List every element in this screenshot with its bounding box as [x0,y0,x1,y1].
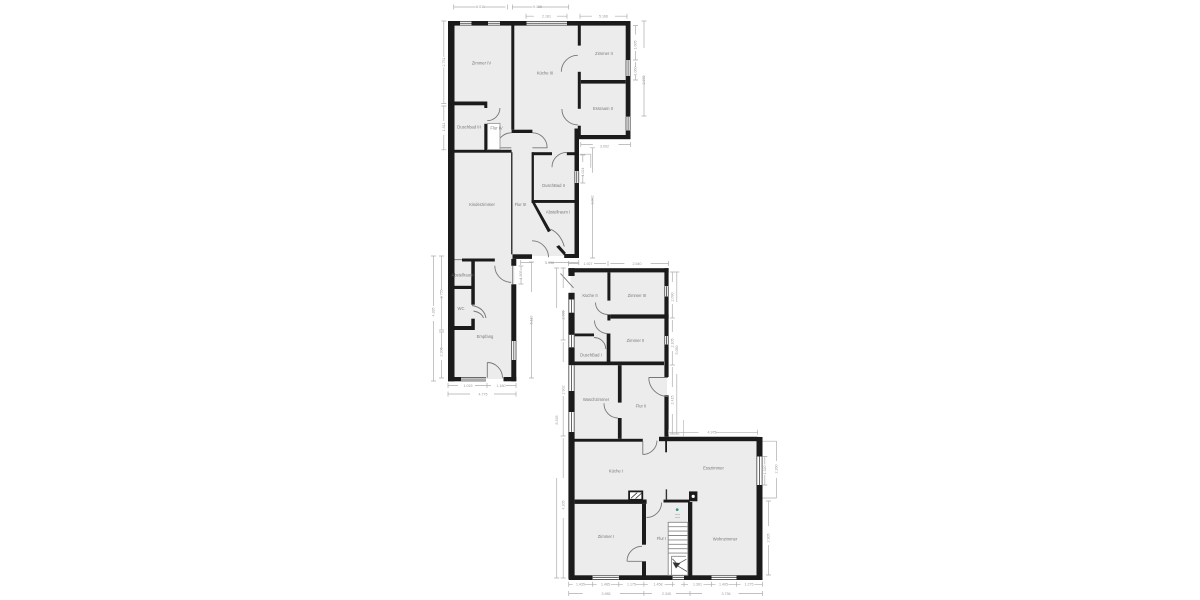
svg-text:1.485: 1.485 [601,583,610,587]
svg-text:Zimmer II: Zimmer II [595,51,613,56]
svg-text:1.175: 1.175 [627,583,636,587]
svg-text:Zimmer IV: Zimmer IV [472,61,492,66]
svg-text:1.320: 1.320 [763,466,767,475]
svg-text:5.050: 5.050 [675,346,679,355]
svg-text:Flur III: Flur III [515,202,527,207]
svg-text:2.415: 2.415 [671,396,675,405]
svg-text:9.166: 9.166 [533,5,542,9]
svg-text:2.305: 2.305 [440,348,444,357]
svg-text:4.285: 4.285 [432,308,436,317]
svg-text:2.970: 2.970 [642,76,646,85]
svg-text:Abstellraum: Abstellraum [451,273,474,278]
svg-text:1.160: 1.160 [497,384,506,388]
svg-text:2.905: 2.905 [767,534,771,543]
svg-text:Flur I: Flur I [657,536,667,541]
svg-text:8.335: 8.335 [555,416,559,425]
svg-text:Zimmer II: Zimmer II [627,338,645,343]
svg-text:Flur II: Flur II [636,404,647,409]
svg-text:5.936: 5.936 [545,261,554,265]
svg-text:2.181: 2.181 [542,14,551,18]
svg-text:2.105: 2.105 [671,339,675,348]
svg-text:1.275: 1.275 [745,583,754,587]
svg-text:1.060: 1.060 [634,67,638,76]
svg-text:Flur IV: Flur IV [490,126,503,131]
svg-text:6.011: 6.011 [476,5,485,9]
svg-text:Abstellraum I: Abstellraum I [546,210,570,215]
svg-text:Esszimmer: Esszimmer [703,466,724,471]
svg-text:3.985: 3.985 [602,592,611,596]
svg-text:DuschBad I: DuschBad I [580,353,602,358]
svg-text:2.755: 2.755 [440,290,444,299]
svg-text:Duschbad III: Duschbad III [457,125,481,130]
svg-text:2.751: 2.751 [442,58,446,67]
svg-text:2.905: 2.905 [561,311,565,320]
svg-text:Zimmer I: Zimmer I [598,534,615,539]
svg-text:2.902: 2.902 [561,386,565,395]
svg-text:1.458: 1.458 [654,583,663,587]
svg-text:4.205: 4.205 [561,501,565,510]
svg-text:1.005: 1.005 [634,41,638,50]
svg-text:DuschBad II: DuschBad II [542,183,565,188]
svg-text:1.811: 1.811 [442,123,446,132]
svg-text:2.345: 2.345 [662,592,671,596]
svg-text:1.021: 1.021 [581,168,585,177]
svg-text:1.405: 1.405 [719,583,728,587]
svg-text:Kinderzimmer: Kinderzimmer [469,202,495,207]
svg-text:6.110: 6.110 [530,316,534,325]
svg-text:Waschzimmer: Waschzimmer [583,397,610,402]
svg-text:Zimmer III: Zimmer III [628,293,647,298]
svg-text:1.361: 1.361 [693,583,702,587]
svg-text:2.260: 2.260 [775,465,779,474]
svg-text:Küche I: Küche I [609,468,623,473]
svg-text:Wohnzimmer: Wohnzimmer [713,536,738,541]
svg-text:1.435: 1.435 [576,583,585,587]
svg-text:2.090: 2.090 [671,293,675,302]
svg-text:Küche II: Küche II [582,293,597,298]
svg-text:4.775: 4.775 [479,392,488,396]
svg-text:3.002: 3.002 [591,196,595,205]
svg-text:3.736: 3.736 [722,592,731,596]
svg-text:1.927: 1.927 [584,262,593,266]
svg-text:Küche III: Küche III [537,71,554,76]
svg-text:WC: WC [458,306,465,311]
svg-text:Empfang: Empfang [477,334,494,339]
svg-text:4.975: 4.975 [708,431,717,435]
svg-text:1.015: 1.015 [464,384,473,388]
svg-text:1.805: 1.805 [519,271,523,280]
svg-text:2.540: 2.540 [633,262,642,266]
svg-text:5.166: 5.166 [599,14,608,18]
svg-text:Essraum II: Essraum II [593,106,613,111]
svg-text:3.002: 3.002 [600,145,609,149]
